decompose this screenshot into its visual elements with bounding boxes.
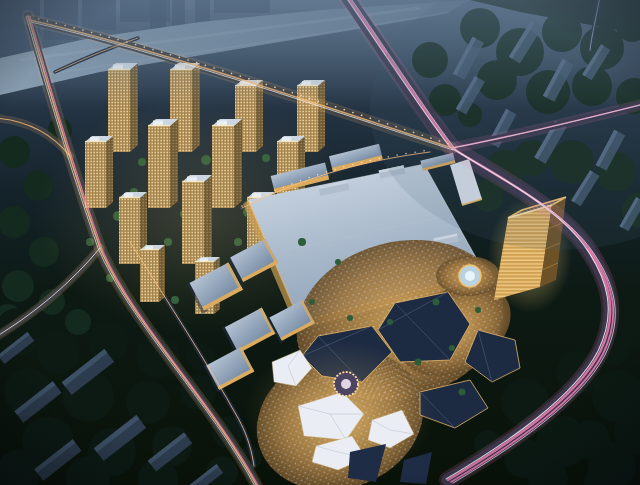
vignette [0, 0, 640, 485]
rendering-canvas [0, 0, 640, 485]
architectural-rendering: Aerial dusk rendering of a mixed-use dev… [0, 0, 640, 485]
